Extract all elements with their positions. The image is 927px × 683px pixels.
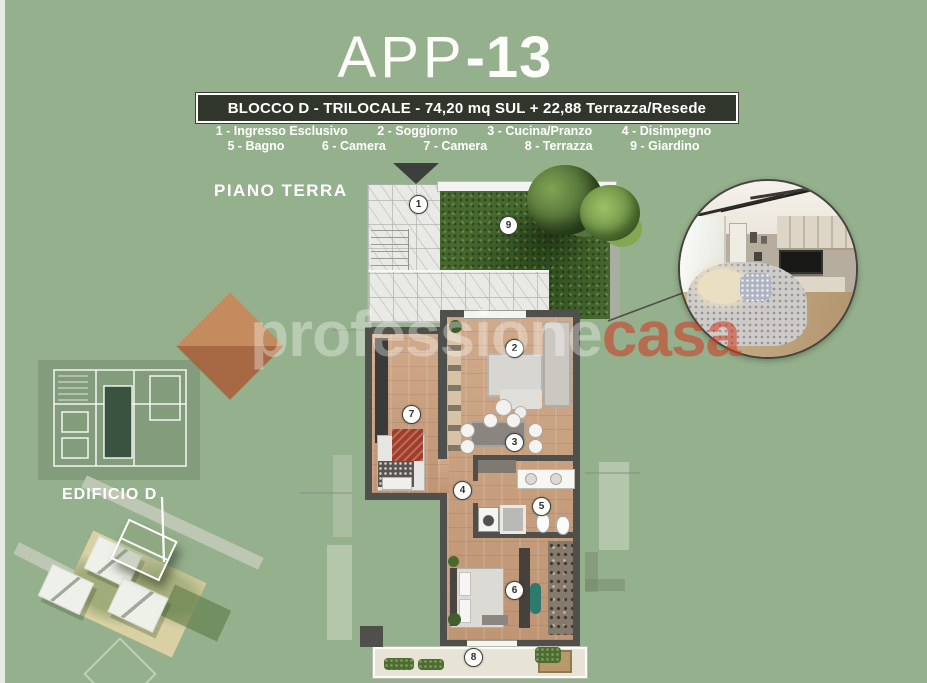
bed-blanket [392,429,423,461]
chair [460,423,475,438]
legend-item-2: 2 - Soggiorno [377,124,458,138]
watermark-text-red: casa [602,298,740,370]
legend-item-4: 4 - Disimpegno [622,124,712,138]
room-marker-9: 9 [499,216,518,235]
ghost-neighbor-outline [333,455,352,537]
legend-item-3: 3 - Cucina/Pranzo [487,124,592,138]
watermark-text: professionecasa [250,302,740,366]
inset-wall-cabinets [777,216,856,250]
terrace-plant [535,647,561,663]
ghost-neighbor-outline [327,545,352,640]
room-legend: 1 - Ingresso Esclusivo 2 - Soggiorno 3 -… [0,124,927,154]
watermark-text-white: professione [250,298,602,370]
room-marker-6: 6 [505,581,524,600]
building-schematic-drawing [38,360,200,480]
shower [500,505,526,534]
chair [528,439,543,454]
legend-item-1: 1 - Ingresso Esclusivo [216,124,348,138]
washing-machine [478,507,499,532]
site-plan-3d [15,498,275,683]
bench [482,615,508,625]
title-app: APP [338,25,466,90]
legend-item-9: 9 - Giardino [630,139,699,153]
title-number: -13 [466,25,553,90]
bidet [556,516,570,535]
room-marker-4: 4 [453,481,472,500]
surfboard [530,583,541,614]
page-title: APP-13 [0,24,890,91]
terrace-plants [384,658,414,670]
legend-item-6: 6 - Camera [322,139,386,153]
chair [506,413,521,428]
banner-text: BLOCCO D - TRILOCALE - 74,20 mq SUL + 22… [228,100,706,117]
chair [483,413,498,428]
entrance-arrow-icon [393,163,439,184]
sink [550,473,562,485]
tree-light [580,185,640,241]
chair [460,439,475,454]
sink [525,473,537,485]
floor-label: PIANO TERRA [214,181,348,201]
plant [448,613,461,626]
room-marker-3: 3 [505,433,524,452]
legend-row-1: 1 - Ingresso Esclusivo 2 - Soggiorno 3 -… [0,124,927,139]
legend-item-8: 8 - Terrazza [525,139,593,153]
plant [448,556,459,567]
wall-stub [360,626,383,647]
inset-pillow [740,273,772,301]
door-passage [438,459,449,493]
building-schematic-panel [38,360,200,480]
floor-plan: 1 2 3 4 5 6 7 8 9 [352,163,624,678]
pillow [459,572,471,596]
open-closet [548,541,573,635]
building-label: EDIFICIO D [62,486,157,504]
terrace-plants [418,659,444,670]
toilet [536,513,550,533]
flyer-page: APP-13 BLOCCO D - TRILOCALE - 74,20 mq S… [0,0,927,683]
bath-console [478,460,516,473]
room-marker-7: 7 [402,405,421,424]
unit-info-banner: BLOCCO D - TRILOCALE - 74,20 mq SUL + 22… [196,93,738,123]
page-edge-margin [0,0,5,683]
legend-row-2: 5 - Bagno 6 - Camera 7 - Camera 8 - Terr… [0,139,927,154]
room-marker-1: 1 [409,195,428,214]
legend-item-5: 5 - Bagno [227,139,284,153]
legend-item-7: 7 - Camera [423,139,487,153]
room-marker-8: 8 [464,648,483,667]
chair [528,423,543,438]
bench [382,477,412,490]
room-marker-5: 5 [532,497,551,516]
building-roof-ridge [121,538,167,561]
